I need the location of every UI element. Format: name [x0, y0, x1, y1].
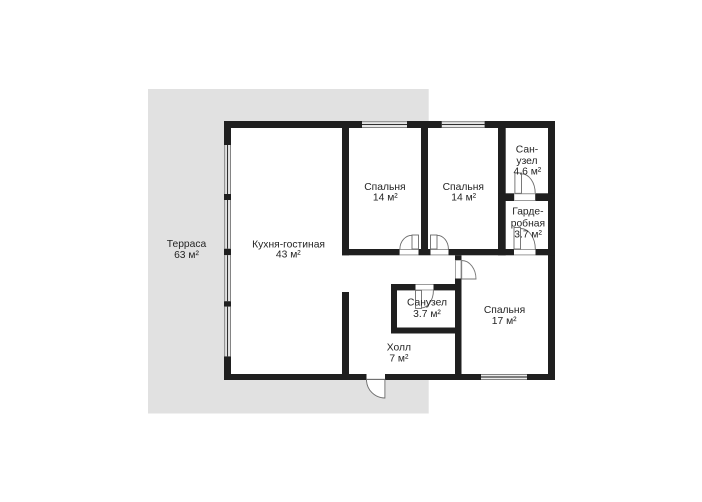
svg-text:43 м²: 43 м² [276, 250, 301, 261]
svg-text:7 м²: 7 м² [389, 354, 409, 365]
svg-text:Санузел: Санузел [407, 298, 447, 309]
svg-text:14 м²: 14 м² [373, 192, 398, 203]
svg-text:Терраса: Терраса [167, 239, 207, 250]
svg-text:Сан-: Сан- [516, 145, 538, 156]
svg-text:14 м²: 14 м² [451, 192, 476, 203]
svg-text:3.7 м²: 3.7 м² [413, 309, 441, 320]
svg-text:3.7 м²: 3.7 м² [514, 229, 542, 240]
svg-text:Спальня: Спальня [484, 305, 525, 316]
svg-text:17 м²: 17 м² [492, 316, 517, 327]
svg-text:узел: узел [516, 156, 537, 167]
svg-text:Спальня: Спальня [364, 182, 405, 193]
svg-text:4.6 м²: 4.6 м² [514, 166, 542, 177]
svg-text:Гарде-: Гарде- [512, 207, 543, 218]
svg-text:робная: робная [511, 217, 545, 229]
svg-text:Холл: Холл [387, 343, 411, 354]
svg-text:63 м²: 63 м² [174, 250, 199, 261]
svg-text:Спальня: Спальня [443, 182, 484, 193]
